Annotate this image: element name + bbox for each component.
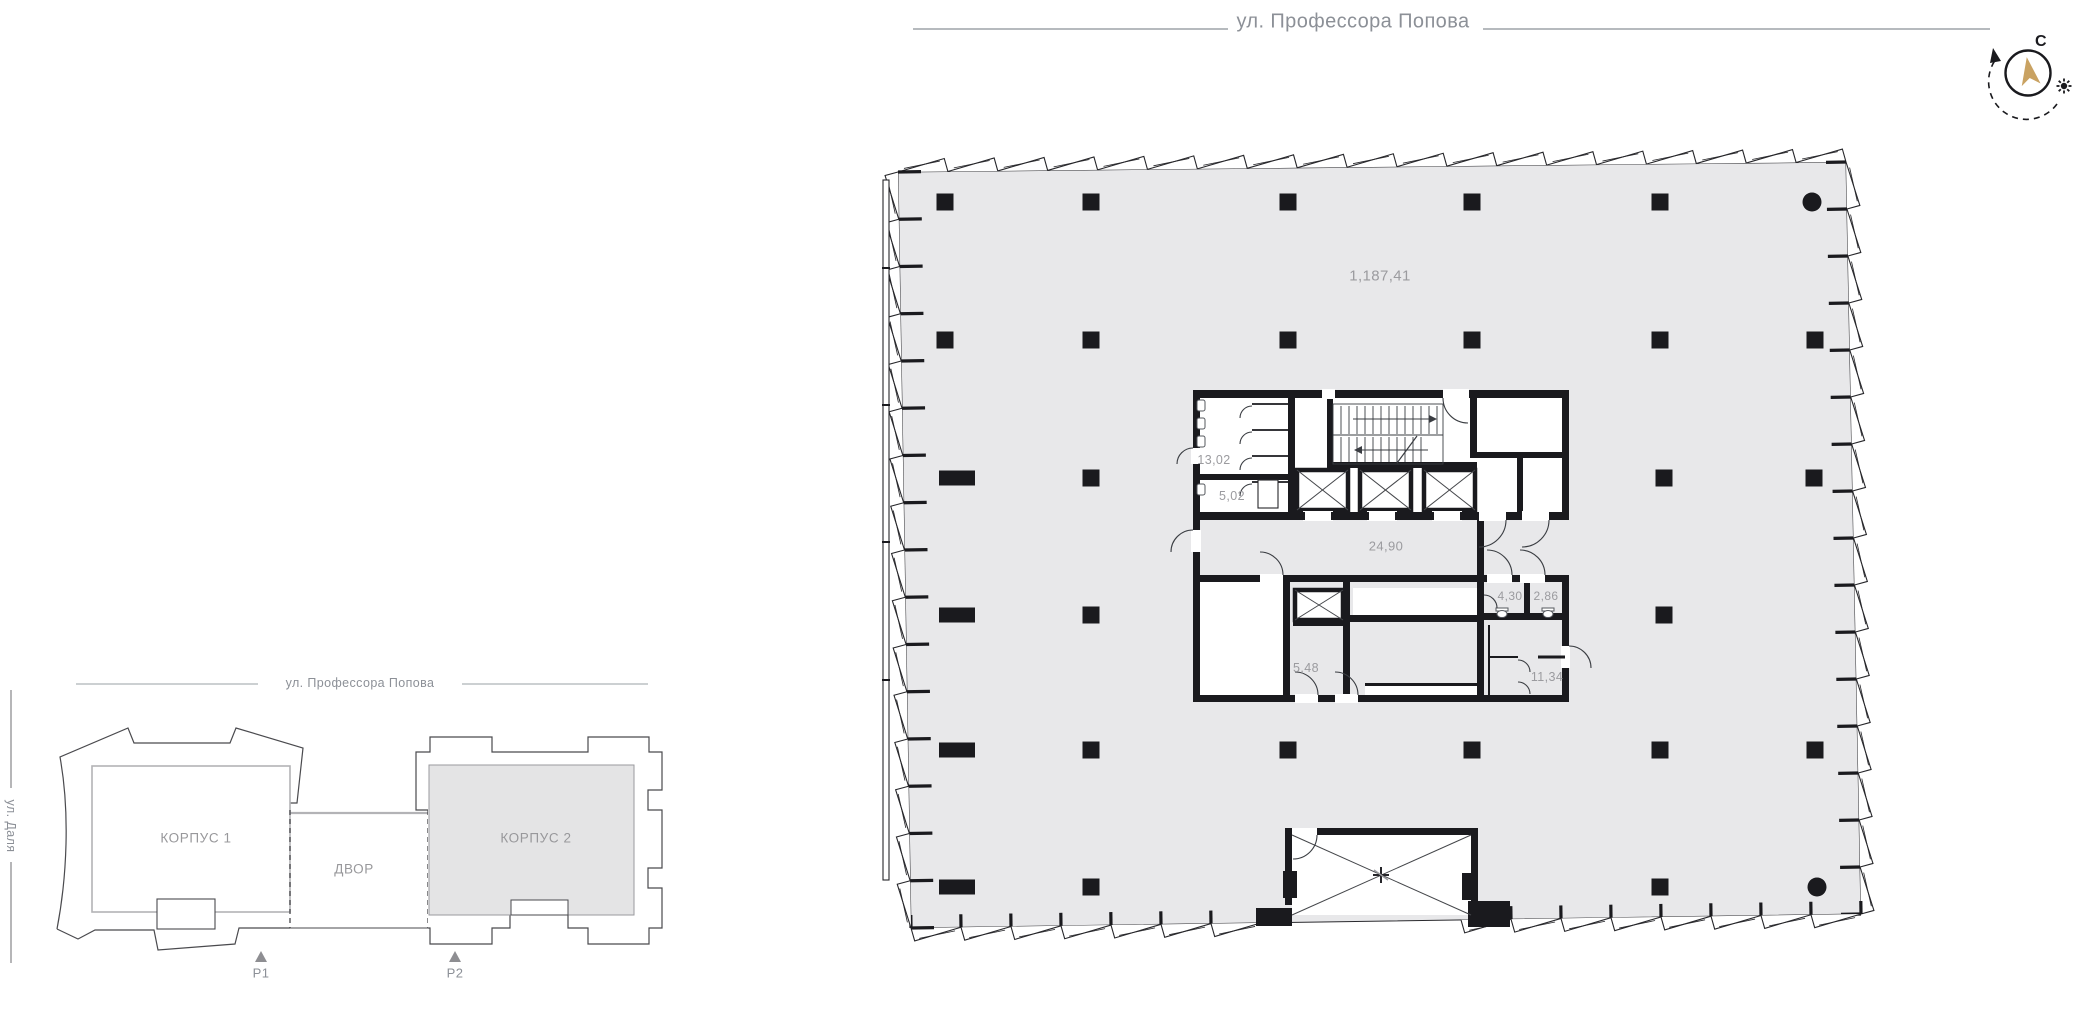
street-left-label: ул. Даля: [4, 800, 18, 853]
area-open-space: 1,187,41: [1349, 268, 1411, 285]
p2-label[interactable]: P2: [447, 966, 464, 981]
site-building2-label[interactable]: КОРПУС 2: [500, 831, 571, 846]
rotation-arrow-icon: [1990, 48, 2001, 63]
area-548: 5,48: [1293, 661, 1319, 675]
area-430: 4,30: [1498, 589, 1523, 603]
site-street-label: ул. Профессора Попова: [286, 676, 435, 690]
street-top-label: ул. Профессора Попова: [1236, 11, 1469, 34]
site-plan: [11, 684, 662, 963]
compass: [1989, 48, 2072, 119]
area-1134: 11,34: [1531, 670, 1563, 684]
floorplan-page: ул. Профессора Попова ул. Профессора Поп…: [0, 0, 2087, 1028]
site-courtyard-label: ДВОР: [334, 862, 374, 877]
p1-marker-icon[interactable]: [255, 951, 267, 962]
area-wc: 13,02: [1197, 453, 1230, 467]
site-building1-label[interactable]: КОРПУС 1: [160, 831, 231, 846]
p1-label[interactable]: P1: [253, 966, 270, 981]
area-wc-small: 5,02: [1219, 489, 1245, 503]
sun-icon: [2057, 79, 2072, 94]
area-lobby: 24,90: [1369, 539, 1404, 554]
compass-north-label: С: [2035, 33, 2047, 51]
p2-marker-icon[interactable]: [449, 951, 461, 962]
left-aux-wall: [882, 180, 890, 880]
bottom-shaft: [1256, 828, 1510, 927]
area-286: 2,86: [1534, 589, 1559, 603]
floorplan-graphic: [0, 0, 2087, 1028]
